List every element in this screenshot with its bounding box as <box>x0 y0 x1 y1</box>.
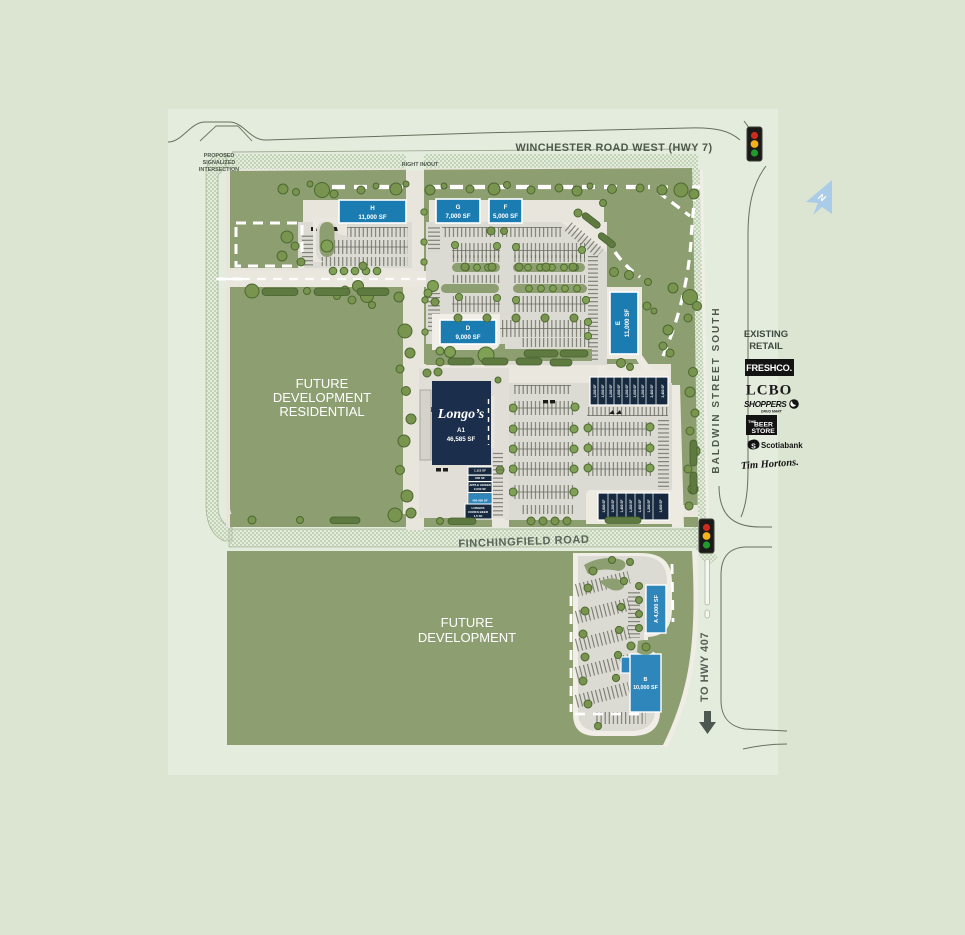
svg-text:DEVELOPMENT: DEVELOPMENT <box>273 390 371 405</box>
svg-text:1,800 SF: 1,800 SF <box>659 499 663 512</box>
svg-text:SIGNALIZED: SIGNALIZED <box>203 160 236 166</box>
svg-text:900 SF: 900 SF <box>475 476 485 480</box>
svg-text:1,200 SF: 1,200 SF <box>611 499 615 512</box>
svg-text:EXISTING: EXISTING <box>744 329 788 340</box>
svg-text:SHOPPERS: SHOPPERS <box>744 400 787 409</box>
svg-text:1,200 SF: 1,200 SF <box>629 499 633 512</box>
svg-text:G: G <box>456 204 461 211</box>
svg-text:11,000 SF: 11,000 SF <box>624 309 631 337</box>
svg-text:S: S <box>751 444 756 451</box>
svg-text:H: H <box>370 205 375 212</box>
svg-text:1,000 SF: 1,000 SF <box>601 384 605 397</box>
svg-text:10,000 SF: 10,000 SF <box>633 685 659 691</box>
svg-text:A1: A1 <box>457 427 465 434</box>
svg-text:2,000 SF: 2,000 SF <box>474 487 486 491</box>
svg-text:STORE: STORE <box>752 428 776 435</box>
svg-text:RESIDENTIAL: RESIDENTIAL <box>279 404 364 419</box>
svg-text:D: D <box>466 325 471 332</box>
svg-text:46,585 SF: 46,585 SF <box>447 436 476 443</box>
svg-text:1,800 SF: 1,800 SF <box>602 499 606 512</box>
svg-text:TO HWY 407: TO HWY 407 <box>699 632 711 702</box>
svg-text:1,400 SF: 1,400 SF <box>620 499 624 512</box>
svg-text:LCBO: LCBO <box>746 383 793 399</box>
svg-text:F: F <box>504 204 508 211</box>
svg-text:1,000 SF: 1,000 SF <box>633 384 637 397</box>
svg-text:BALDWIN STREET SOUTH: BALDWIN STREET SOUTH <box>711 306 722 473</box>
svg-text:A 4,000 SF: A 4,000 SF <box>654 594 660 623</box>
svg-text:DRUG MART: DRUG MART <box>761 410 783 414</box>
svg-text:1,400 SF: 1,400 SF <box>638 499 642 512</box>
svg-text:7,000 SF: 7,000 SF <box>445 213 470 220</box>
svg-text:WINCHESTER ROAD WEST (HWY 7): WINCHESTER ROAD WEST (HWY 7) <box>516 142 713 154</box>
svg-text:E: E <box>615 321 622 325</box>
svg-text:Scotiabank: Scotiabank <box>761 441 803 450</box>
svg-text:2,400 SF: 2,400 SF <box>661 384 665 397</box>
svg-text:1,200 SF: 1,200 SF <box>641 384 645 397</box>
svg-text:1,5 SF: 1,5 SF <box>474 514 483 518</box>
svg-text:RETAIL: RETAIL <box>749 341 783 352</box>
svg-text:2,400 SF: 2,400 SF <box>650 384 654 397</box>
svg-text:11,000 SF: 11,000 SF <box>358 214 386 221</box>
svg-text:400 000 SF: 400 000 SF <box>472 499 488 503</box>
svg-text:B: B <box>644 677 648 683</box>
svg-text:RIGHT IN/OUT: RIGHT IN/OUT <box>402 162 439 168</box>
svg-text:1,000 SF: 1,000 SF <box>617 384 621 397</box>
svg-text:1,200 SF: 1,200 SF <box>593 384 597 397</box>
svg-text:1,113 SF: 1,113 SF <box>474 469 486 473</box>
svg-text:5,000 SF: 5,000 SF <box>493 213 518 220</box>
svg-text:1,200 SF: 1,200 SF <box>625 384 629 397</box>
svg-text:1,200 SF: 1,200 SF <box>609 384 613 397</box>
svg-text:Longo’s: Longo’s <box>437 407 485 422</box>
svg-text:DEVELOPMENT: DEVELOPMENT <box>418 630 516 645</box>
svg-text:FRESHCO.: FRESHCO. <box>746 363 792 373</box>
svg-text:FUTURE: FUTURE <box>441 615 494 630</box>
svg-text:INTERSECTION: INTERSECTION <box>199 167 239 173</box>
svg-text:1,200 SF: 1,200 SF <box>647 499 651 512</box>
svg-text:FUTURE: FUTURE <box>296 376 349 391</box>
svg-text:9,000 SF: 9,000 SF <box>455 334 480 341</box>
svg-text:PROPOSED: PROPOSED <box>204 153 235 159</box>
